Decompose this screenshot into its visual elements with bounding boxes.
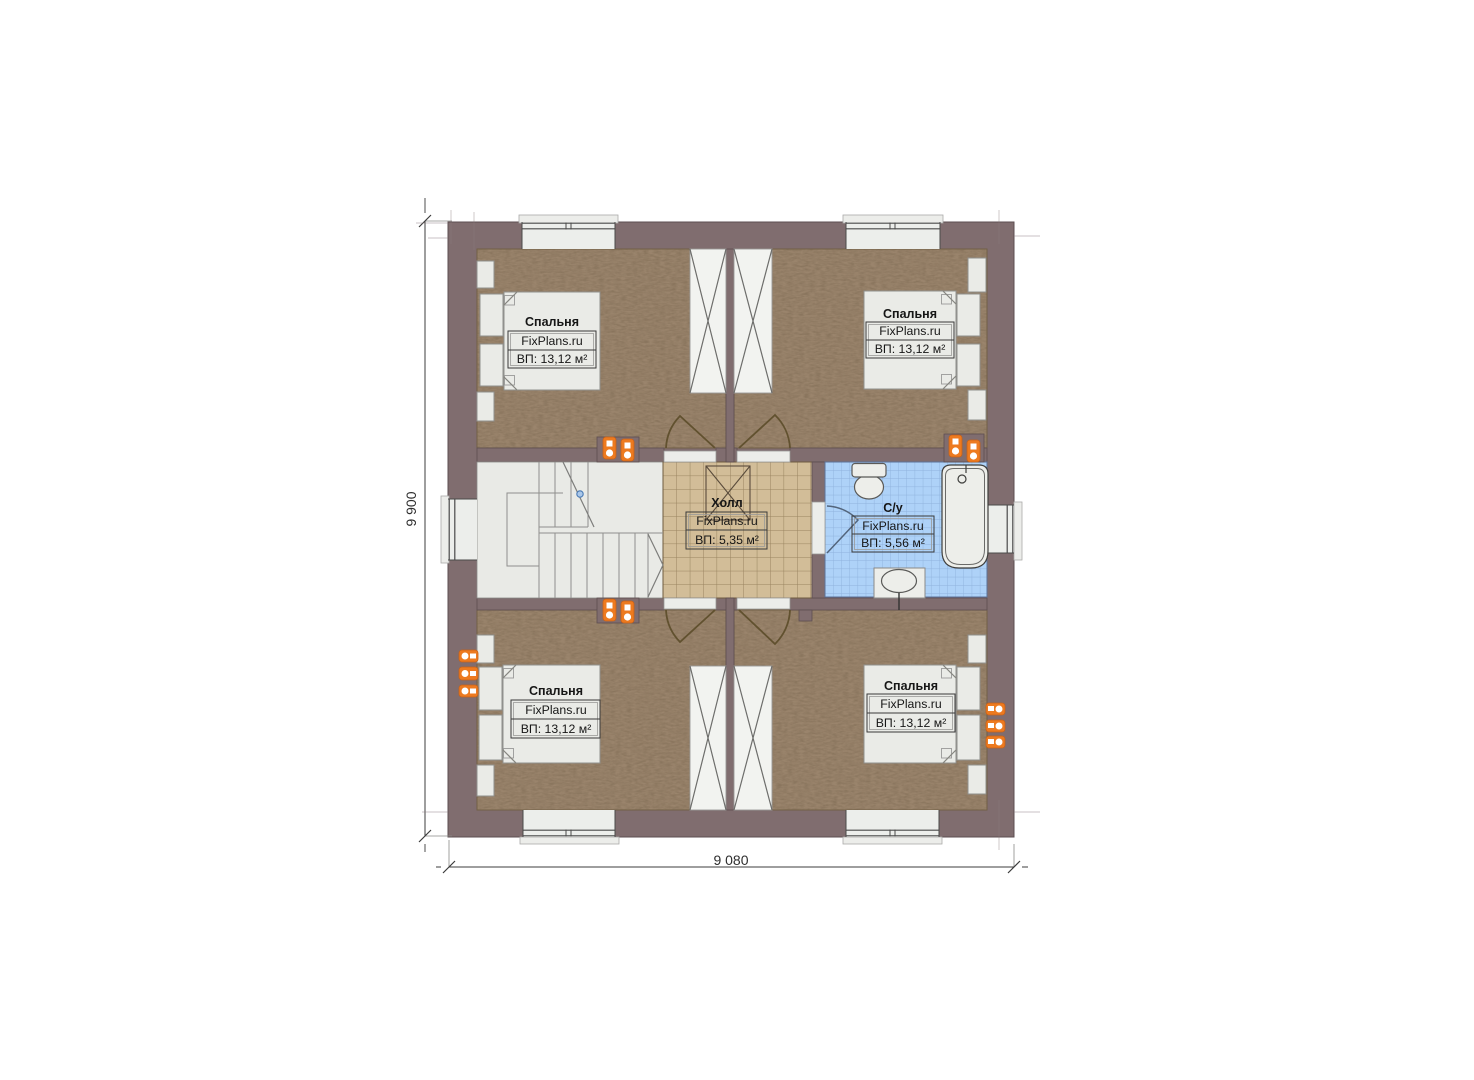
svg-text:Спальня: Спальня: [529, 684, 583, 698]
svg-text:Спальня: Спальня: [883, 307, 937, 321]
svg-text:ВП: 5,35 м²: ВП: 5,35 м²: [695, 533, 759, 547]
svg-text:Холл: Холл: [711, 496, 742, 510]
svg-text:9 900: 9 900: [403, 491, 419, 526]
svg-text:ВП: 5,56 м²: ВП: 5,56 м²: [861, 536, 925, 550]
svg-text:FixPlans.ru: FixPlans.ru: [696, 514, 758, 528]
svg-text:ВП: 13,12 м²: ВП: 13,12 м²: [876, 716, 947, 730]
svg-text:9 080: 9 080: [713, 852, 748, 868]
svg-text:С/у: С/у: [883, 501, 903, 515]
svg-text:FixPlans.ru: FixPlans.ru: [521, 334, 583, 348]
svg-text:FixPlans.ru: FixPlans.ru: [880, 697, 942, 711]
svg-text:Спальня: Спальня: [525, 315, 579, 329]
svg-text:FixPlans.ru: FixPlans.ru: [862, 519, 924, 533]
svg-text:ВП: 13,12 м²: ВП: 13,12 м²: [521, 722, 592, 736]
svg-text:ВП: 13,12 м²: ВП: 13,12 м²: [517, 352, 588, 366]
svg-text:FixPlans.ru: FixPlans.ru: [879, 324, 941, 338]
svg-text:Спальня: Спальня: [884, 679, 938, 693]
svg-text:FixPlans.ru: FixPlans.ru: [525, 703, 587, 717]
svg-text:ВП: 13,12 м²: ВП: 13,12 м²: [875, 342, 946, 356]
